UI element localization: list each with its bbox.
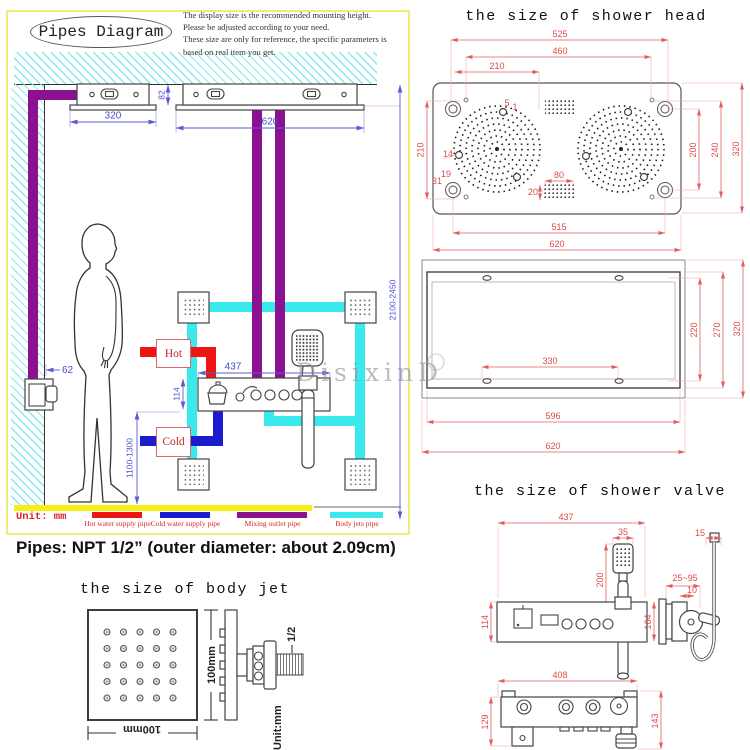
dim-210-top: 210 (489, 61, 504, 71)
hot-label: Hot (165, 348, 182, 360)
body-jet-side-view: 1/2 Unit:mm (220, 610, 303, 750)
shower-head-box-view (422, 260, 685, 398)
legend-swatch-cold (160, 512, 210, 518)
dim-100mm-width: 100mm (123, 723, 161, 735)
wall-valve-box (25, 379, 57, 410)
dim-596: 596 (545, 411, 560, 421)
ceiling-mount-boxes (70, 84, 364, 110)
body-jet-front-view: 100mm 100mm (88, 610, 218, 740)
disclaimer-line: The display size is the recommended moun… (183, 9, 407, 21)
dim-200: 200 (688, 142, 698, 157)
dim-20: 20 (528, 187, 538, 197)
dim-31: 31 (432, 176, 442, 186)
dim-114: 114 (172, 387, 182, 401)
dim-200-wand: 200 (595, 572, 605, 587)
shower-valve-side-view: 25~95 10 104 15 (643, 528, 721, 660)
dim-25-95: 25~95 (672, 573, 697, 583)
dim-100mm-height: 100mm (206, 646, 218, 684)
dim-515: 515 (551, 222, 566, 232)
dim-460: 460 (552, 46, 567, 56)
disclaimer-line: These size are only for reference, the s… (183, 33, 407, 57)
dim-437: 437 (225, 362, 242, 373)
thread-connector (276, 654, 303, 675)
dim-620-box: 620 (545, 441, 560, 451)
dim-270: 270 (712, 322, 722, 337)
legend-label-cold: Cold water supply pipe (138, 519, 233, 528)
shower-valve-top-view: 408 129 143 (480, 670, 661, 749)
dim-437-valve: 437 (558, 512, 573, 522)
mist-nozzle-grid-top (545, 99, 574, 114)
dim-1100-1300: 1100-1300 (125, 438, 135, 478)
dim-104: 104 (643, 614, 653, 629)
dim-210-left: 210 (416, 142, 426, 157)
product-size-diagram: Pipes Diagram The display size is the re… (0, 0, 750, 750)
body-jet-unit-label: Unit:mm (272, 705, 284, 750)
dim-35: 35 (618, 527, 628, 537)
pipes-diagram-title: Pipes Diagram (30, 16, 172, 48)
dim-15: 15 (695, 528, 705, 538)
thread-size-label: 1/2 (286, 627, 298, 642)
legend-swatch-mixing (237, 512, 307, 518)
dim-62: 62 (62, 365, 74, 376)
shower-head-front-view (433, 83, 681, 214)
dim-408: 408 (552, 670, 567, 680)
dim-129: 129 (480, 714, 490, 729)
cold-label-box: Cold (156, 427, 191, 457)
dim-80: 80 (554, 170, 564, 180)
legend-swatch-body-jets (330, 512, 383, 518)
shower-head-section-title: the size of shower head (430, 8, 742, 25)
person-silhouette (69, 224, 127, 502)
dim-82: 82 (157, 90, 167, 100)
watermark: DisixinD (296, 358, 443, 387)
dim-2100-2450: 2100-2450 (388, 279, 398, 320)
dim-620: 620 (262, 117, 279, 128)
dim-19: 19 (441, 169, 451, 179)
dim-114-valve: 114 (480, 615, 490, 629)
pipes-diagram-title-text: Pipes Diagram (39, 23, 164, 41)
dim-525: 525 (552, 29, 567, 39)
dim-14: 14 (443, 149, 453, 159)
dim-10: 10 (687, 585, 697, 595)
pipes-spec-note: Pipes: NPT 1/2” (outer diameter: about 2… (16, 538, 396, 558)
dim-320: 320 (105, 111, 122, 122)
dim-5: 5 (504, 98, 509, 108)
dim-320-right: 320 (731, 141, 741, 156)
dim-620-bottom: 620 (549, 239, 564, 249)
dim-330: 330 (542, 356, 557, 366)
dim-320-box: 320 (732, 321, 742, 336)
body-jet-section-title: the size of body jet (60, 581, 310, 598)
mist-nozzle-grid-bottom (543, 184, 576, 200)
cold-label: Cold (162, 436, 184, 448)
dim-240: 240 (710, 142, 720, 157)
dim-220: 220 (689, 322, 699, 337)
dim-1: 1 (512, 102, 517, 112)
legend-swatch-hot (92, 512, 142, 518)
dim-143: 143 (650, 713, 660, 728)
unit-label: Unit: mm (16, 511, 66, 523)
legend-label-body-jets: Body jets pipe (312, 519, 402, 528)
disclaimer-note: The display size is the recommended moun… (183, 9, 407, 58)
hot-label-box: Hot (156, 339, 191, 368)
shower-valve-front-view: 437 35 200 (480, 512, 647, 679)
shower-hose (692, 542, 714, 660)
legend-label-mixing: Mixing outlet pipe (225, 519, 320, 528)
disclaimer-line: Please be adjusted according to your nee… (183, 21, 407, 33)
wand-holder (615, 597, 631, 609)
shower-valve-section-title: the size of shower valve (452, 483, 748, 500)
